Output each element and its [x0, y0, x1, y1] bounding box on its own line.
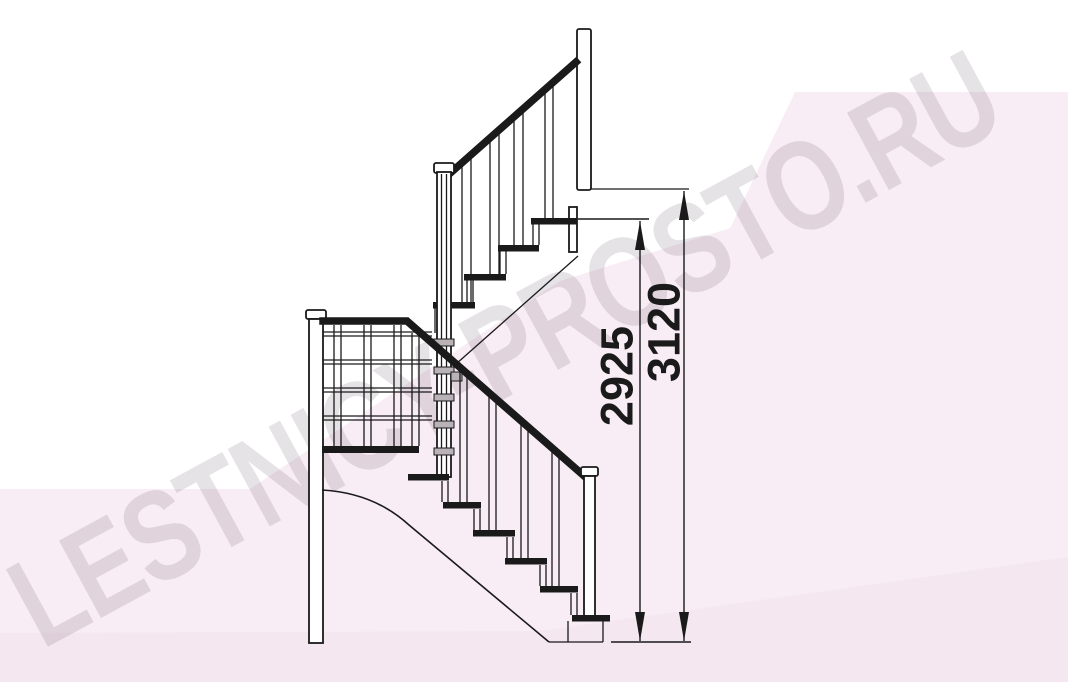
center-column [437, 172, 451, 477]
top-step-post [569, 207, 577, 252]
staircase-elevation-drawing: LESTNICY-PROSTO.RU [0, 0, 1068, 682]
bottom-newel-cap [581, 467, 598, 476]
tread [464, 274, 506, 281]
tread [443, 502, 481, 509]
dimension-label-3120: 3120 [639, 282, 690, 382]
dimension-label-2925: 2925 [592, 326, 643, 426]
tread [473, 530, 515, 537]
tread [540, 586, 578, 593]
bottom-newel-post [584, 476, 595, 616]
tread [505, 558, 547, 565]
landing-fascia-bar [322, 446, 419, 453]
watermark-background-shapes: LESTNICY-PROSTO.RU [0, 24, 1068, 682]
upper-handrail [447, 62, 576, 176]
staircase-elevation-page: LESTNICY-PROSTO.RU [0, 0, 1068, 682]
tread [572, 615, 610, 622]
tread [408, 474, 449, 481]
tread [498, 245, 539, 252]
top-newel-post [577, 29, 591, 190]
tread [531, 218, 577, 225]
left-newel-post [309, 319, 323, 643]
